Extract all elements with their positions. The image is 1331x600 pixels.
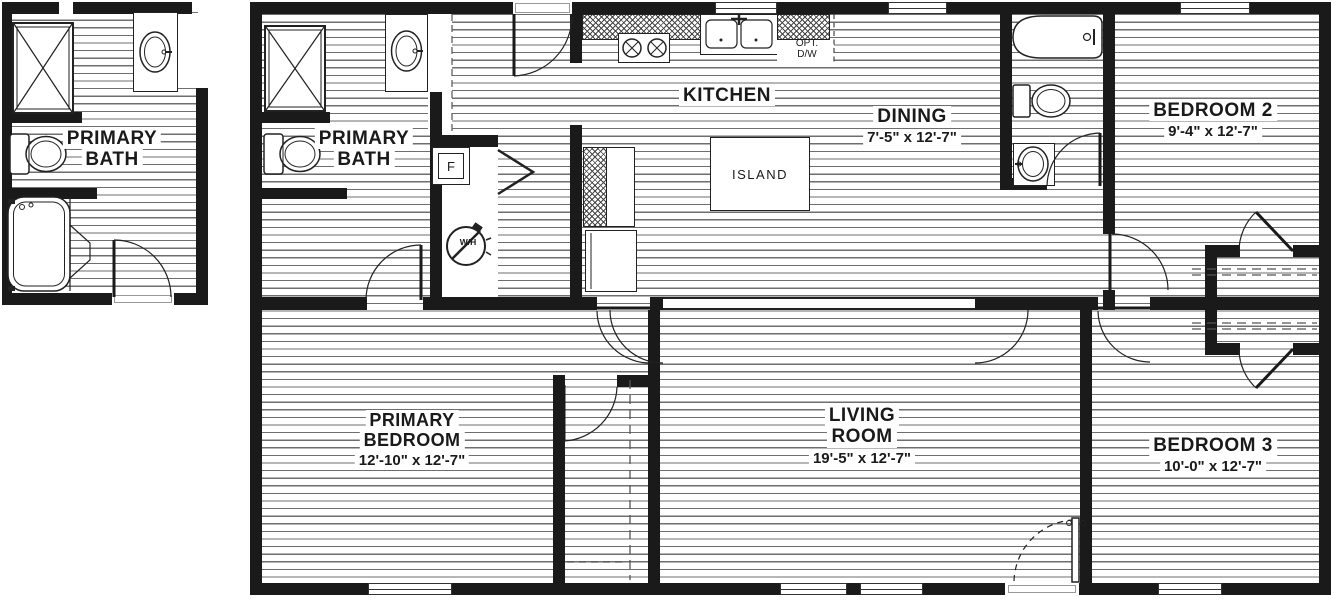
water-heater-label: W/H — [453, 238, 483, 247]
wall — [1205, 245, 1217, 297]
range — [618, 33, 670, 63]
wall — [12, 188, 97, 199]
room-name: BATH — [333, 149, 394, 170]
opt-label: OPT. — [779, 38, 835, 49]
wall — [423, 297, 597, 310]
hall-bath-vanity — [1013, 143, 1055, 186]
room-name: BEDROOM 3 — [1149, 435, 1277, 456]
room-dims: 19'-5" x 12'-7" — [809, 451, 915, 468]
window — [780, 583, 847, 595]
door-sill — [1008, 585, 1076, 593]
bedroom2-label: BEDROOM 2 9'-4" x 12'-7" — [1149, 100, 1277, 141]
opt-dw-label: OPT. D/W — [779, 38, 835, 60]
wall — [570, 125, 582, 308]
primary-bedroom-label: PRIMARY BEDROOM 12'-10" x 12'-7" — [355, 410, 469, 470]
detail-bath-label: PRIMARY BATH — [63, 128, 161, 171]
wall — [1293, 245, 1319, 257]
kitchen-label: KITCHEN — [679, 85, 775, 106]
wall — [2, 2, 12, 305]
wall — [2, 293, 208, 305]
wall — [1293, 343, 1319, 355]
dining-label: DINING 7'-5" x 12'-7" — [863, 106, 961, 147]
wall — [570, 14, 582, 63]
wall — [1150, 297, 1331, 310]
window — [368, 583, 452, 595]
dw-label: D/W — [779, 49, 835, 60]
wall — [262, 297, 367, 310]
shower — [12, 22, 74, 114]
vanity — [385, 14, 428, 92]
window — [888, 2, 947, 14]
room-name: PRIMARY — [315, 128, 413, 149]
pantry-cabinet — [606, 147, 635, 227]
bedroom3-label: BEDROOM 3 10'-0" x 12'-7" — [1149, 435, 1277, 476]
wall — [250, 2, 262, 595]
room-name: ROOM — [827, 426, 896, 447]
floorplan: PRIMARY BATH — [0, 0, 1331, 600]
room-dims: 12'-10" x 12'-7" — [355, 453, 469, 470]
wall — [1103, 290, 1115, 310]
room-name: PRIMARY — [63, 128, 161, 149]
window — [1180, 2, 1250, 14]
room-name: LIVING — [825, 405, 899, 426]
wall — [430, 135, 498, 147]
wall — [1103, 14, 1115, 234]
cased-opening-header — [663, 297, 975, 310]
wall — [196, 88, 208, 305]
room-name: DINING — [873, 106, 951, 127]
wall — [1205, 310, 1217, 355]
living-room-label: LIVING ROOM 19'-5" x 12'-7" — [809, 405, 915, 467]
window — [715, 2, 777, 14]
kitchen-sink-cabinet — [700, 14, 778, 55]
room-dims: 9'-4" x 12'-7" — [1164, 124, 1262, 141]
wall — [250, 2, 1331, 14]
wall — [553, 375, 565, 583]
refrigerator — [585, 230, 637, 292]
wall — [617, 375, 660, 387]
furnace: F — [438, 153, 464, 179]
detail-cut-area — [178, 14, 198, 88]
wall — [650, 297, 663, 310]
wall — [262, 188, 347, 199]
wall — [1000, 14, 1012, 178]
wall — [430, 92, 442, 310]
room-name: BEDROOM — [360, 430, 465, 450]
room-name: PRIMARY — [365, 410, 458, 430]
wall — [553, 375, 562, 387]
window — [1158, 583, 1222, 595]
door-sill — [515, 3, 570, 13]
window — [860, 583, 923, 595]
pantry-counter — [583, 147, 607, 227]
primary-bath-label: PRIMARY BATH — [315, 128, 413, 171]
wh-text: W/H — [460, 237, 477, 247]
kitchen-island: ISLAND — [710, 137, 810, 211]
vanity — [133, 12, 178, 92]
room-name: BATH — [81, 149, 142, 170]
room-name: BEDROOM 2 — [1149, 100, 1277, 121]
wall — [648, 310, 660, 583]
room-dims: 7'-5" x 12'-7" — [863, 130, 961, 147]
window-gap — [59, 2, 73, 14]
door-sill — [114, 295, 172, 303]
wall — [975, 297, 1098, 310]
room-name: KITCHEN — [679, 85, 775, 106]
shower — [264, 25, 326, 112]
wall — [262, 112, 330, 123]
wall — [1080, 310, 1092, 583]
furnace-label: F — [447, 159, 455, 174]
island-label: ISLAND — [732, 167, 788, 182]
room-dims: 10'-0" x 12'-7" — [1160, 459, 1266, 476]
